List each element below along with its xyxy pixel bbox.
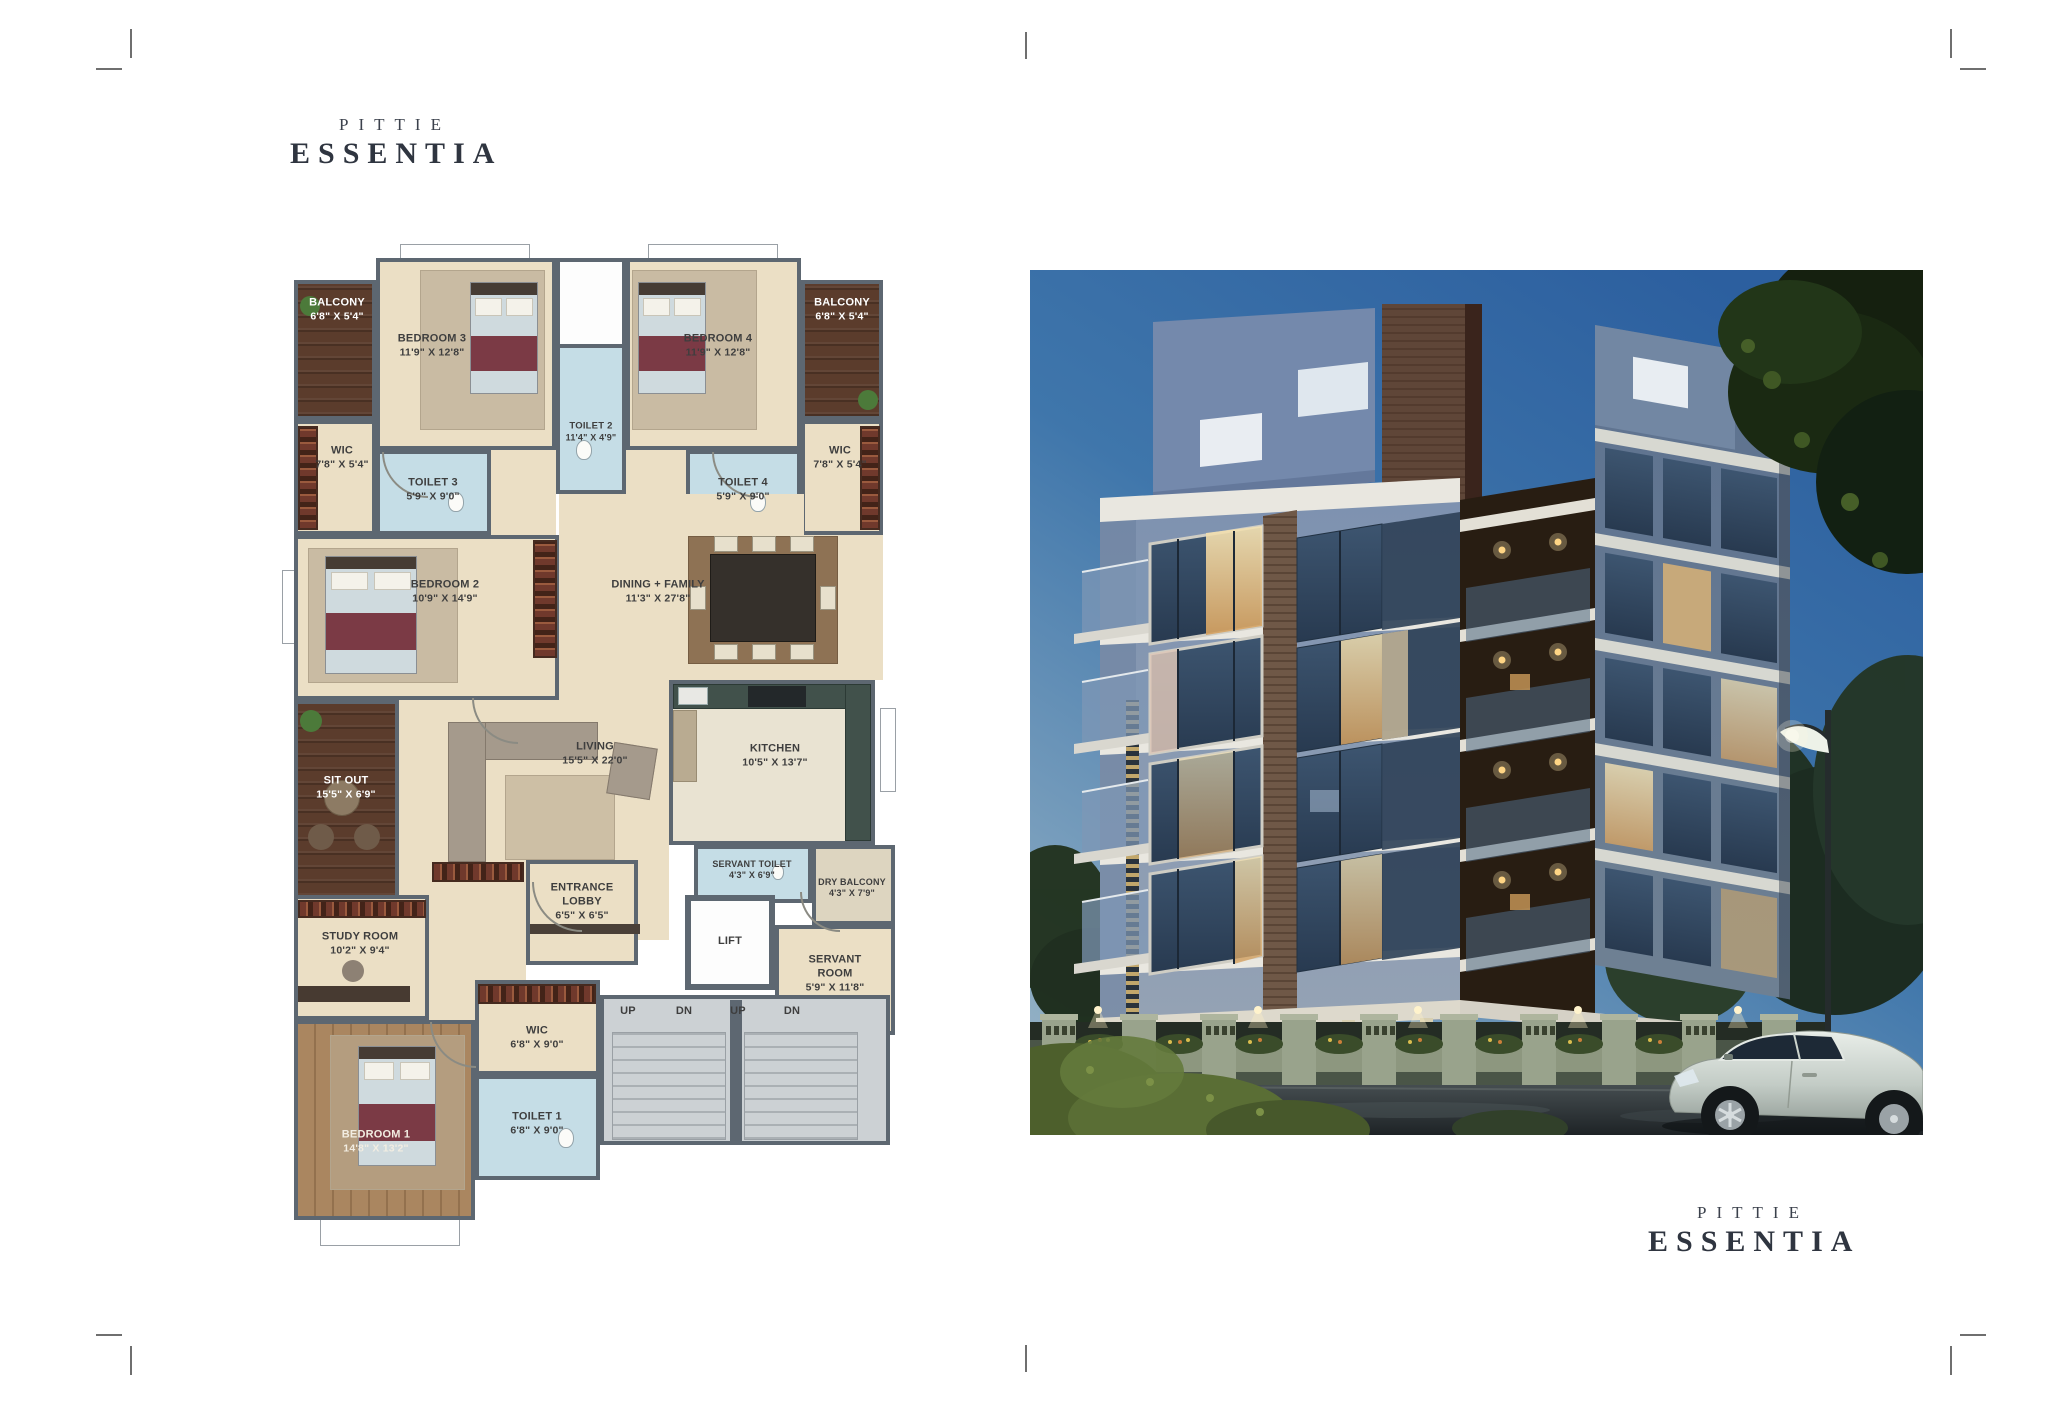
dining-chair: [790, 536, 814, 552]
label-stairs-dn-1: DN: [676, 1005, 692, 1019]
patio-chair: [308, 824, 334, 850]
pillow: [331, 572, 367, 590]
label-dry-balcony: DRY BALCONY4'3" X 7'9": [818, 877, 886, 900]
pillow: [643, 298, 670, 316]
brand-top-left: PITTIE ESSENTIA: [290, 116, 500, 169]
pillow: [400, 1062, 431, 1080]
wardrobe: [478, 984, 596, 1004]
dining-chair: [752, 644, 776, 660]
sofa: [448, 722, 486, 862]
building: [1074, 304, 1792, 1094]
desk-chair: [342, 960, 364, 982]
label-wic-left: WIC7'8" X 5'4": [315, 445, 368, 472]
dining-chair: [820, 586, 836, 610]
room-toilet-2: [556, 344, 626, 494]
stairs-spine: [730, 1000, 742, 1142]
dining-chair: [714, 536, 738, 552]
crop-mark: [1960, 68, 1986, 70]
label-toilet-2: TOILET 211'4" X 4'9": [566, 420, 617, 443]
label-balcony-tl: BALCONY6'8" X 5'4": [309, 297, 365, 324]
building-photo: [1030, 270, 1923, 1135]
plant: [300, 710, 322, 732]
label-servant-toilet: SERVANT TOILET4'3" X 6'9": [712, 859, 791, 882]
label-bedroom-2: BEDROOM 210'9" X 14'9": [411, 579, 479, 606]
label-bedroom-1: BEDROOM 114'8" X 13'2": [342, 1129, 410, 1156]
label-living: LIVING15'5" X 22'0": [562, 741, 627, 768]
pillow: [506, 298, 533, 316]
label-bedroom-4: BEDROOM 411'9" X 12'8": [684, 333, 752, 360]
balcony-recess: [1460, 478, 1595, 1015]
pillow: [674, 298, 701, 316]
crop-mark: [1950, 29, 1952, 58]
crop-mark: [96, 1334, 122, 1336]
patio-chair: [354, 824, 380, 850]
page: PITTIE ESSENTIA: [0, 0, 2052, 1404]
label-balcony-tr: BALCONY6'8" X 5'4": [814, 297, 870, 324]
label-sit-out: SIT OUT15'5" X 6'9": [316, 775, 375, 802]
pillow: [364, 1062, 395, 1080]
rug: [505, 775, 615, 860]
blanket: [471, 336, 537, 371]
label-stairs-up-2: UP: [730, 1005, 746, 1019]
stairs-flight: [612, 1032, 726, 1140]
label-toilet-3: TOILET 35'9" X 9'0": [406, 477, 459, 504]
headboard: [639, 283, 705, 295]
crop-mark: [130, 29, 132, 58]
crop-mark: [130, 1346, 132, 1375]
dining-chair: [714, 644, 738, 660]
window-bay: [880, 708, 896, 792]
brand-bottom-right: PITTIE ESSENTIA: [1648, 1204, 1858, 1257]
bed: [470, 282, 538, 394]
crop-mark: [96, 68, 122, 70]
label-stairs-dn-2: DN: [784, 1005, 800, 1019]
crop-mark: [1025, 32, 1027, 59]
wardrobe: [298, 900, 426, 918]
stairs-flight: [744, 1032, 858, 1140]
kitchen-counter: [845, 684, 871, 841]
brand-wordmark-small: PITTIE: [290, 116, 500, 133]
pillow: [475, 298, 502, 316]
wardrobe: [298, 426, 318, 530]
headboard: [471, 283, 537, 295]
crop-mark: [1960, 1334, 1986, 1336]
brand-wordmark-small: PITTIE: [1648, 1204, 1858, 1221]
desk: [298, 986, 410, 1002]
label-stairs-up-1: UP: [620, 1005, 636, 1019]
label-toilet-4: TOILET 45'9" X 9'0": [716, 477, 769, 504]
tv-console: [530, 924, 640, 934]
headboard: [326, 557, 416, 569]
plant: [858, 390, 878, 410]
label-entrance-lobby: ENTRANCE LOBBY6'5" X 6'5": [545, 882, 619, 923]
room-passage-a: [491, 450, 556, 535]
label-wic-bottom: WIC6'8" X 9'0": [510, 1025, 563, 1052]
kitchen-island: [673, 710, 697, 782]
label-dining: DINING + FAMILY11'3" X 27'8": [611, 579, 704, 606]
brand-wordmark-large: ESSENTIA: [1648, 1227, 1858, 1257]
dining-chair: [752, 536, 776, 552]
label-servant-room: SERVANT ROOM5'9" X 11'8": [798, 954, 872, 995]
wardrobe: [860, 426, 880, 530]
window-bay: [320, 1216, 460, 1246]
headboard: [359, 1047, 435, 1059]
room-duct: [556, 258, 626, 348]
crop-mark: [1025, 1345, 1027, 1372]
pillow: [374, 572, 410, 590]
label-kitchen: KITCHEN10'5" X 13'7": [742, 743, 807, 770]
stove: [748, 686, 806, 707]
wardrobe: [432, 862, 524, 882]
wardrobe: [533, 540, 557, 658]
crop-mark: [1950, 1346, 1952, 1375]
dining-table: [710, 554, 816, 642]
label-toilet-1: TOILET 16'8" X 9'0": [510, 1111, 563, 1138]
bed: [325, 556, 417, 674]
dining-chair: [790, 644, 814, 660]
blanket: [326, 613, 416, 650]
sink: [678, 687, 708, 705]
label-lift: LIFT: [718, 935, 742, 949]
label-wic-right: WIC7'8" X 5'4": [813, 445, 866, 472]
floor-plan: BALCONY6'8" X 5'4" BEDROOM 311'9" X 12'8…: [280, 240, 930, 1280]
label-study-room: STUDY ROOM10'2" X 9'4": [322, 931, 398, 958]
label-bedroom-3: BEDROOM 311'9" X 12'8": [398, 333, 466, 360]
brand-wordmark-large: ESSENTIA: [290, 139, 500, 169]
